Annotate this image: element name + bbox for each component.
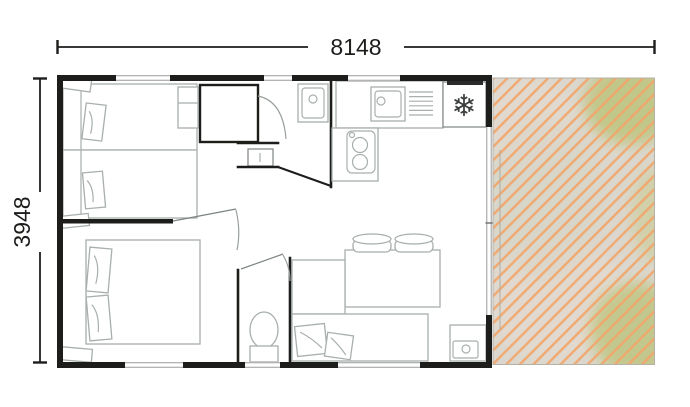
sliding-glass-door: [486, 127, 493, 315]
floor-plan-canvas: 8148 3948: [0, 0, 690, 407]
wall-bottom: [57, 362, 125, 368]
chair: [395, 234, 433, 252]
shower-room: [298, 84, 328, 122]
window: [264, 75, 292, 81]
wall-bottom: [280, 362, 338, 368]
wall: [57, 219, 173, 224]
window: [245, 362, 280, 368]
window: [338, 362, 420, 368]
wall-top: [57, 75, 116, 81]
floorplan-page: 8148 3948: [0, 0, 690, 407]
bedroom-1: [58, 76, 198, 229]
folded-blanket: [59, 347, 92, 363]
cushion: [295, 324, 328, 357]
wall-bottom: [420, 362, 492, 368]
wall-top: [292, 75, 348, 81]
window: [348, 75, 400, 81]
bedside-shelf: [178, 87, 198, 128]
chair: [353, 234, 391, 252]
wardrobe: [200, 85, 258, 142]
water-heater: [450, 325, 486, 361]
wall-left: [57, 75, 63, 368]
wall-bottom: [183, 362, 245, 368]
dimension-top: 8148: [57, 34, 655, 60]
sofa-back: [292, 260, 345, 314]
height-dimension-label: 3948: [9, 196, 35, 247]
pillow: [86, 247, 112, 293]
window: [116, 75, 170, 81]
dining-table: [345, 250, 440, 307]
wall-top: [400, 75, 492, 81]
toilet-tank: [250, 346, 278, 362]
snowflake-icon: ❄: [451, 89, 476, 124]
dimension-left: 3948: [9, 78, 47, 363]
wall-right: [486, 75, 492, 127]
toilet-bowl: [250, 312, 278, 348]
terrace: [465, 61, 686, 378]
width-dimension-label: 8148: [330, 34, 381, 60]
single-bed: [63, 84, 197, 150]
pillow: [82, 103, 106, 141]
wall-top: [170, 75, 264, 81]
pillow: [86, 295, 112, 341]
terrace-hatch-overlay: [493, 78, 655, 365]
cushion: [324, 332, 353, 359]
wall-right: [486, 315, 492, 368]
pillow: [82, 171, 105, 209]
window: [125, 362, 183, 368]
